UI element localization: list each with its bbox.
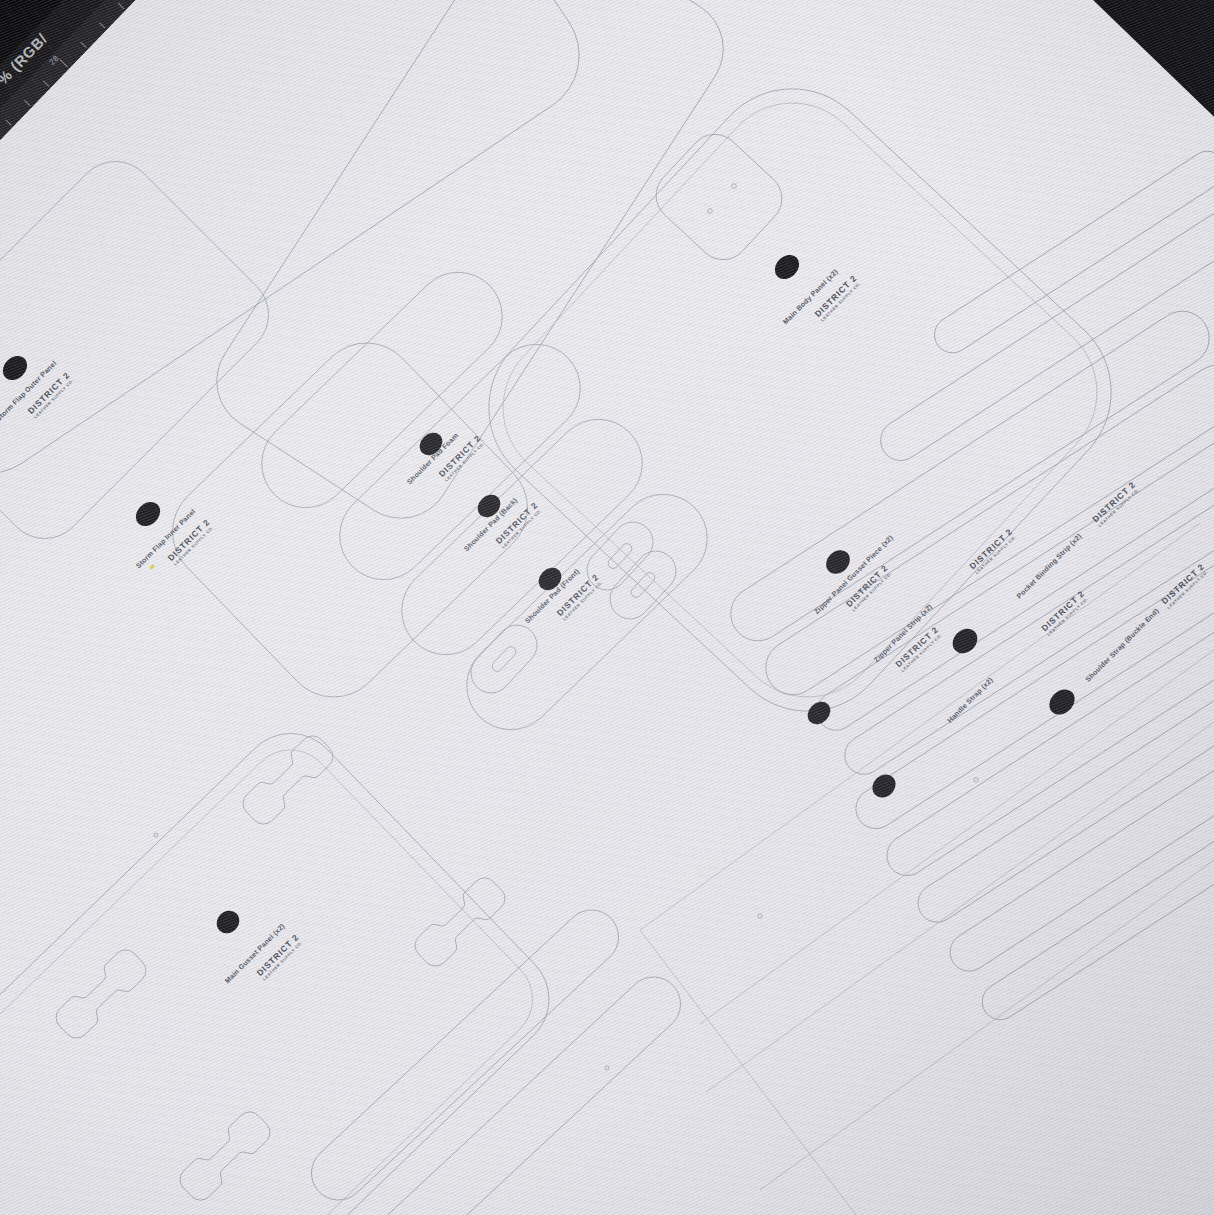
pattern-outlines (0, 0, 1214, 1215)
photographed-screen: Storm Flap Outer Panel DISTRICT 2 Leathe… (0, 0, 1214, 1215)
large-panel-outlines (0, 0, 1146, 1215)
strap-strip-outlines (154, 144, 1214, 1215)
yellow-speck (149, 564, 155, 570)
dogbone-slot-outlines (51, 731, 510, 1205)
grommet-holes (0, 250, 1080, 938)
background-panel-edges (640, 523, 1214, 1215)
